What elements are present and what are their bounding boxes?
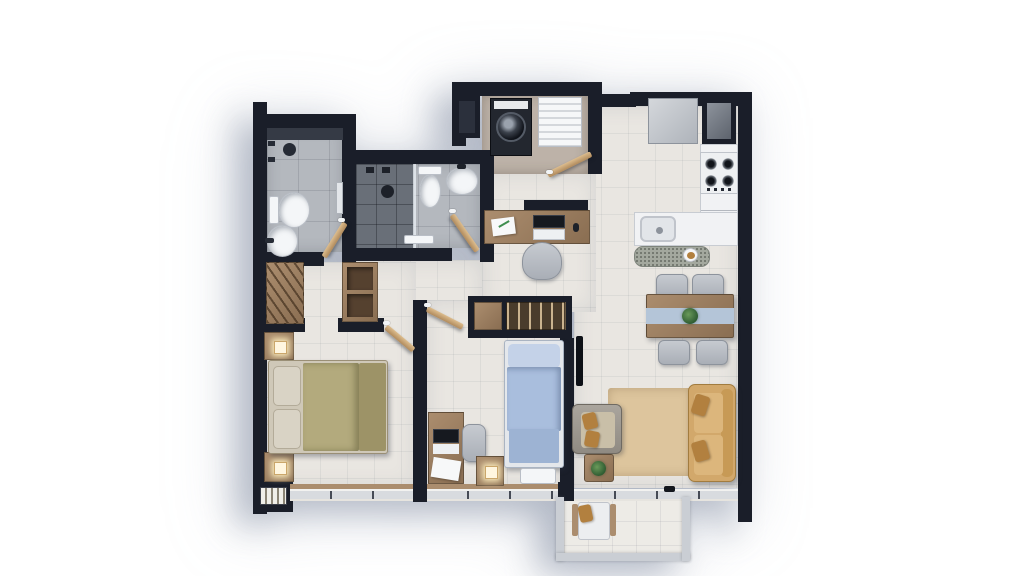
granite-island (634, 246, 710, 267)
entry-door-handle (546, 170, 553, 174)
bed-blanket (509, 429, 559, 463)
sliding-door-living-balcony (574, 489, 738, 501)
shower-top-band (267, 128, 343, 140)
wardrobe2-hanger-rail (506, 302, 566, 330)
cooktop-knobs (707, 188, 733, 191)
shower-head-icon (381, 185, 394, 198)
dining-chair (696, 340, 728, 365)
shelf-compartment (347, 267, 373, 290)
bed-pillow (508, 344, 560, 368)
nightstand-lamp (485, 466, 498, 479)
bath2-door-handle (449, 209, 456, 213)
sink-drain (656, 227, 663, 234)
food (687, 252, 695, 259)
wall-bath2-bottom (356, 248, 452, 261)
bed-pillow (273, 409, 301, 449)
master-bedroom-door-handle (383, 321, 390, 325)
foot-bench (520, 468, 556, 484)
hall-desk (484, 210, 590, 244)
nightstand-lamp (274, 341, 287, 354)
single-bed (504, 340, 564, 468)
paper-sheet (431, 457, 462, 481)
refrigerator (648, 98, 698, 144)
cooktop-4-burners (700, 152, 738, 194)
shower-valve-icon (366, 167, 374, 173)
wardrobe2-shelf-box (474, 302, 502, 330)
bathroom-mirror-panel (336, 182, 343, 214)
low-striped-cabinet (260, 487, 287, 505)
bed-duvet (507, 367, 561, 431)
shower-valve-icon (268, 141, 275, 146)
wall-exterior-right (738, 92, 752, 522)
shower-head-icon (283, 143, 296, 156)
balcony-railing-right (682, 497, 690, 561)
toilet-bowl (278, 192, 310, 228)
tall-cabinet-front (707, 103, 731, 139)
dining-chair (658, 340, 690, 365)
armchair (572, 404, 622, 454)
sliding-door-handle (664, 486, 675, 492)
balcony-lounge-chair (572, 502, 616, 540)
burner (705, 175, 717, 187)
window-master-bedroom (290, 489, 414, 501)
slatted-drying-rack (538, 97, 582, 147)
laptop-keyboard (533, 229, 565, 240)
round-basin (446, 167, 478, 195)
armchair-pillow (584, 430, 601, 448)
washer-control-panel (494, 101, 528, 109)
shower-bench (404, 235, 434, 244)
master-bed (268, 360, 388, 454)
wall-bedroom-divider (413, 300, 427, 488)
window-second-bedroom (427, 489, 561, 501)
basin-faucet-icon (265, 238, 274, 243)
bed-pillow (273, 366, 301, 406)
plate-of-food (683, 248, 698, 262)
open-wardrobe-hangers (266, 262, 304, 324)
basin-faucet-icon (457, 164, 466, 169)
wall-bath2-right (480, 150, 494, 262)
balcony-railing-bottom (556, 553, 690, 561)
bedroom2-door-handle (424, 303, 431, 307)
shelf-compartment (347, 294, 373, 317)
master-bath-door-handle (338, 218, 345, 222)
wall-bath2-top (342, 150, 494, 164)
burner (705, 158, 717, 170)
wall-tv (576, 336, 583, 386)
wall-mid-vertical (342, 114, 356, 268)
nightstand-lamp (274, 462, 287, 475)
burner (722, 158, 734, 170)
wall-master-bath-top (253, 114, 355, 128)
washer-door (496, 112, 526, 142)
bed-duvet-fold (359, 363, 386, 451)
bed-duvet (303, 363, 359, 451)
coffee-table-plant (591, 461, 606, 476)
balcony-railing-left (556, 497, 564, 561)
dining-centerpiece-plant (682, 308, 698, 324)
wall-laundry-top (452, 82, 602, 96)
laptop-keyboard (433, 444, 459, 454)
apartment-plan (0, 0, 1024, 576)
lounge-frame (610, 504, 616, 536)
washing-machine (490, 98, 532, 156)
shower-valve-icon (382, 167, 390, 173)
laptop-screen (533, 215, 565, 228)
shower-valve-icon (268, 157, 275, 162)
bedroom2-desk (428, 412, 464, 484)
service-shaft-inner (459, 101, 475, 133)
burner (722, 175, 734, 187)
desk-chair (522, 242, 562, 280)
laptop-screen (433, 429, 459, 443)
wall-window-stub-1 (413, 482, 427, 502)
sofa (688, 384, 736, 482)
shelf-unit (342, 262, 378, 322)
paper-sheet (491, 217, 516, 237)
mouse (573, 223, 579, 232)
floor-plan-canvas (0, 0, 1024, 576)
kitchen-sink (640, 216, 676, 242)
toilet-bowl (419, 174, 441, 208)
